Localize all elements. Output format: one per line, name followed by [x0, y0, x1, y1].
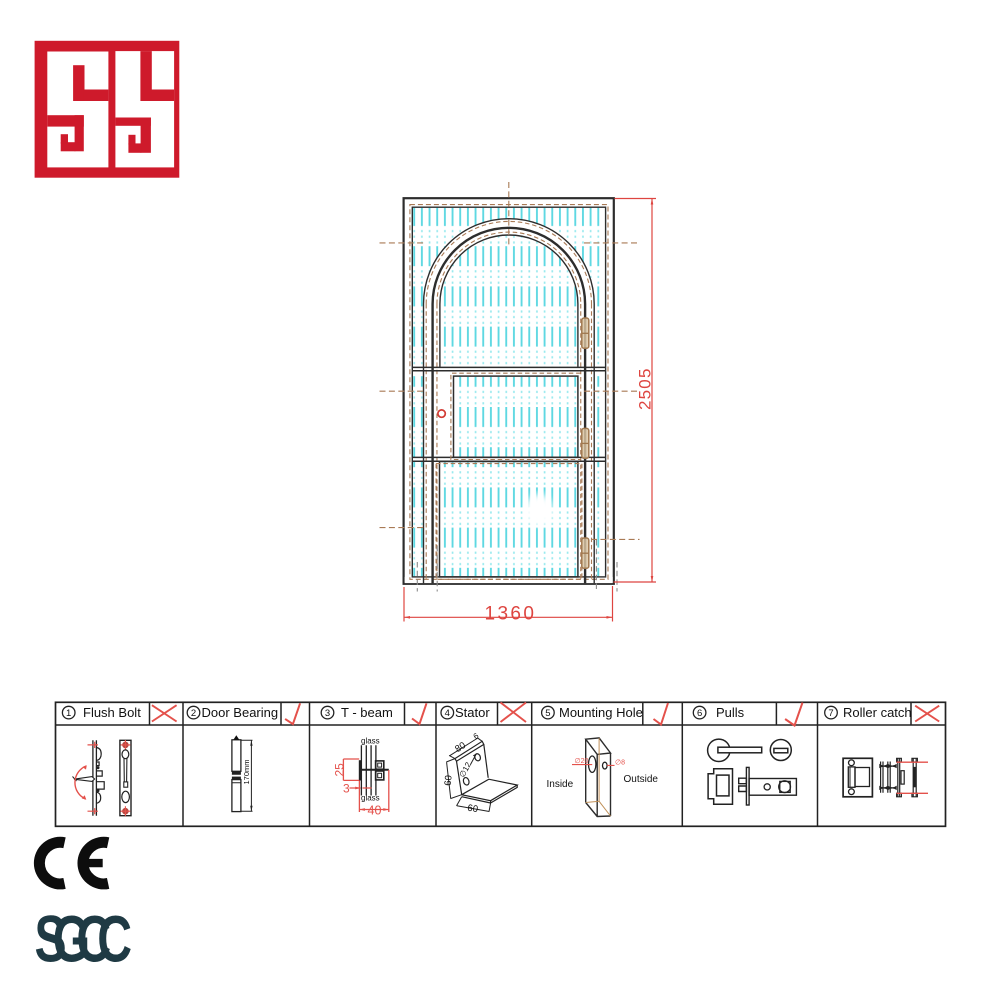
svg-text:T - beam: T - beam [341, 705, 393, 720]
svg-text:Outside: Outside [624, 774, 659, 785]
svg-text:60: 60 [443, 775, 455, 787]
svg-text:3: 3 [325, 708, 330, 719]
svg-text:40: 40 [368, 804, 382, 818]
svg-text:6: 6 [697, 708, 702, 719]
svg-text:25: 25 [333, 763, 347, 777]
svg-text:2505: 2505 [636, 367, 655, 410]
svg-text:80: 80 [453, 740, 468, 755]
svg-text:170mm: 170mm [242, 759, 251, 784]
svg-text:glass: glass [361, 737, 380, 746]
svg-text:2: 2 [191, 708, 196, 719]
svg-text:SGCC: SGCC [35, 903, 132, 976]
svg-text:60: 60 [466, 803, 478, 816]
svg-text:7: 7 [828, 708, 833, 719]
svg-text:3: 3 [343, 782, 350, 796]
svg-text:Inside: Inside [547, 779, 574, 790]
svg-text:Roller catch: Roller catch [843, 705, 912, 720]
svg-text:glass: glass [361, 794, 380, 803]
svg-text:∅20: ∅20 [575, 758, 589, 765]
svg-text:Stator: Stator [455, 705, 490, 720]
svg-text:5: 5 [545, 708, 550, 719]
svg-text:1: 1 [66, 708, 71, 719]
svg-text:1360: 1360 [485, 604, 537, 625]
svg-text:Door Bearing: Door Bearing [202, 705, 279, 720]
svg-text:Pulls: Pulls [716, 705, 745, 720]
svg-text:∅8: ∅8 [615, 759, 625, 766]
svg-text:4: 4 [445, 708, 450, 719]
svg-text:Flush Bolt: Flush Bolt [83, 705, 141, 720]
svg-text:Mounting Hole: Mounting Hole [559, 705, 643, 720]
